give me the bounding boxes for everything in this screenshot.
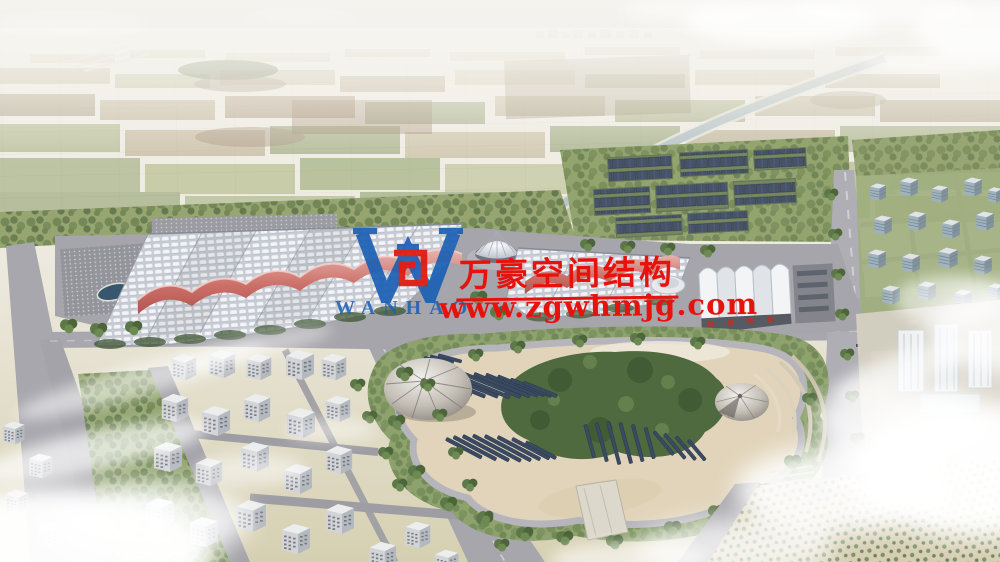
rendered-scene [0, 0, 1000, 562]
small-cone [715, 383, 769, 421]
aerial-render: WANHAO 万豪空间结构 www.zgwhmjg.com [0, 0, 1000, 562]
